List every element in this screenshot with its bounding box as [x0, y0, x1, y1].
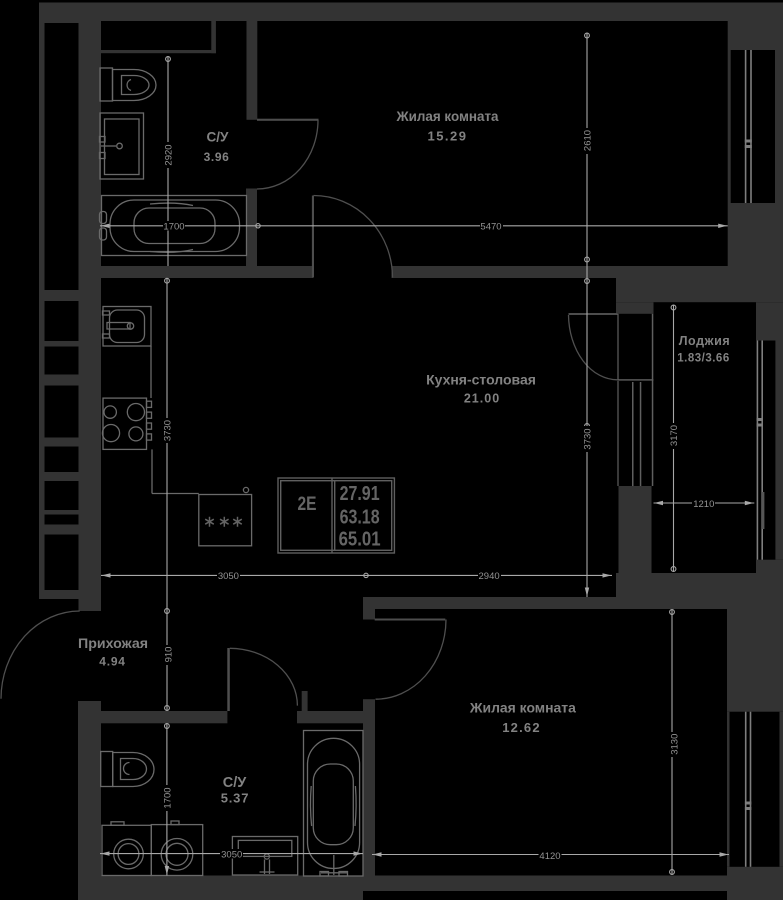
svg-text:5470: 5470 — [480, 222, 501, 233]
svg-text:С/У: С/У — [223, 775, 248, 791]
svg-text:21.00: 21.00 — [464, 392, 500, 406]
svg-text:27.91: 27.91 — [340, 483, 380, 505]
svg-text:63.18: 63.18 — [340, 507, 380, 529]
svg-text:3730: 3730 — [163, 420, 174, 441]
svg-text:4.94: 4.94 — [99, 655, 126, 669]
svg-text:Жилая комната: Жилая комната — [396, 108, 499, 124]
svg-text:1210: 1210 — [693, 499, 714, 510]
svg-text:2940: 2940 — [479, 571, 500, 582]
svg-text:15.29: 15.29 — [427, 129, 467, 144]
svg-text:3050: 3050 — [221, 849, 242, 860]
svg-text:910: 910 — [164, 647, 175, 663]
svg-text:4120: 4120 — [539, 851, 560, 862]
svg-text:3130: 3130 — [670, 734, 681, 755]
svg-text:1700: 1700 — [163, 787, 174, 808]
svg-text:1.83/3.66: 1.83/3.66 — [677, 353, 729, 365]
svg-text:Жилая комната: Жилая комната — [469, 700, 576, 716]
svg-text:65.01: 65.01 — [339, 529, 381, 551]
svg-text:2610: 2610 — [583, 130, 594, 151]
svg-text:3.96: 3.96 — [204, 150, 230, 164]
svg-text:С/У: С/У — [207, 130, 230, 145]
svg-text:1700: 1700 — [163, 222, 184, 233]
svg-text:3730: 3730 — [583, 428, 594, 449]
svg-text:Прихожая: Прихожая — [78, 636, 148, 651]
svg-text:Лоджия: Лоджия — [679, 334, 731, 348]
svg-text:2920: 2920 — [164, 144, 175, 165]
svg-text:3170: 3170 — [669, 425, 680, 446]
svg-text:12.62: 12.62 — [502, 720, 541, 735]
svg-text:Кухня-столовая: Кухня-столовая — [426, 372, 536, 388]
svg-text:5.37: 5.37 — [221, 791, 250, 806]
svg-text:2Е: 2Е — [298, 493, 317, 515]
svg-text:3050: 3050 — [218, 571, 239, 582]
